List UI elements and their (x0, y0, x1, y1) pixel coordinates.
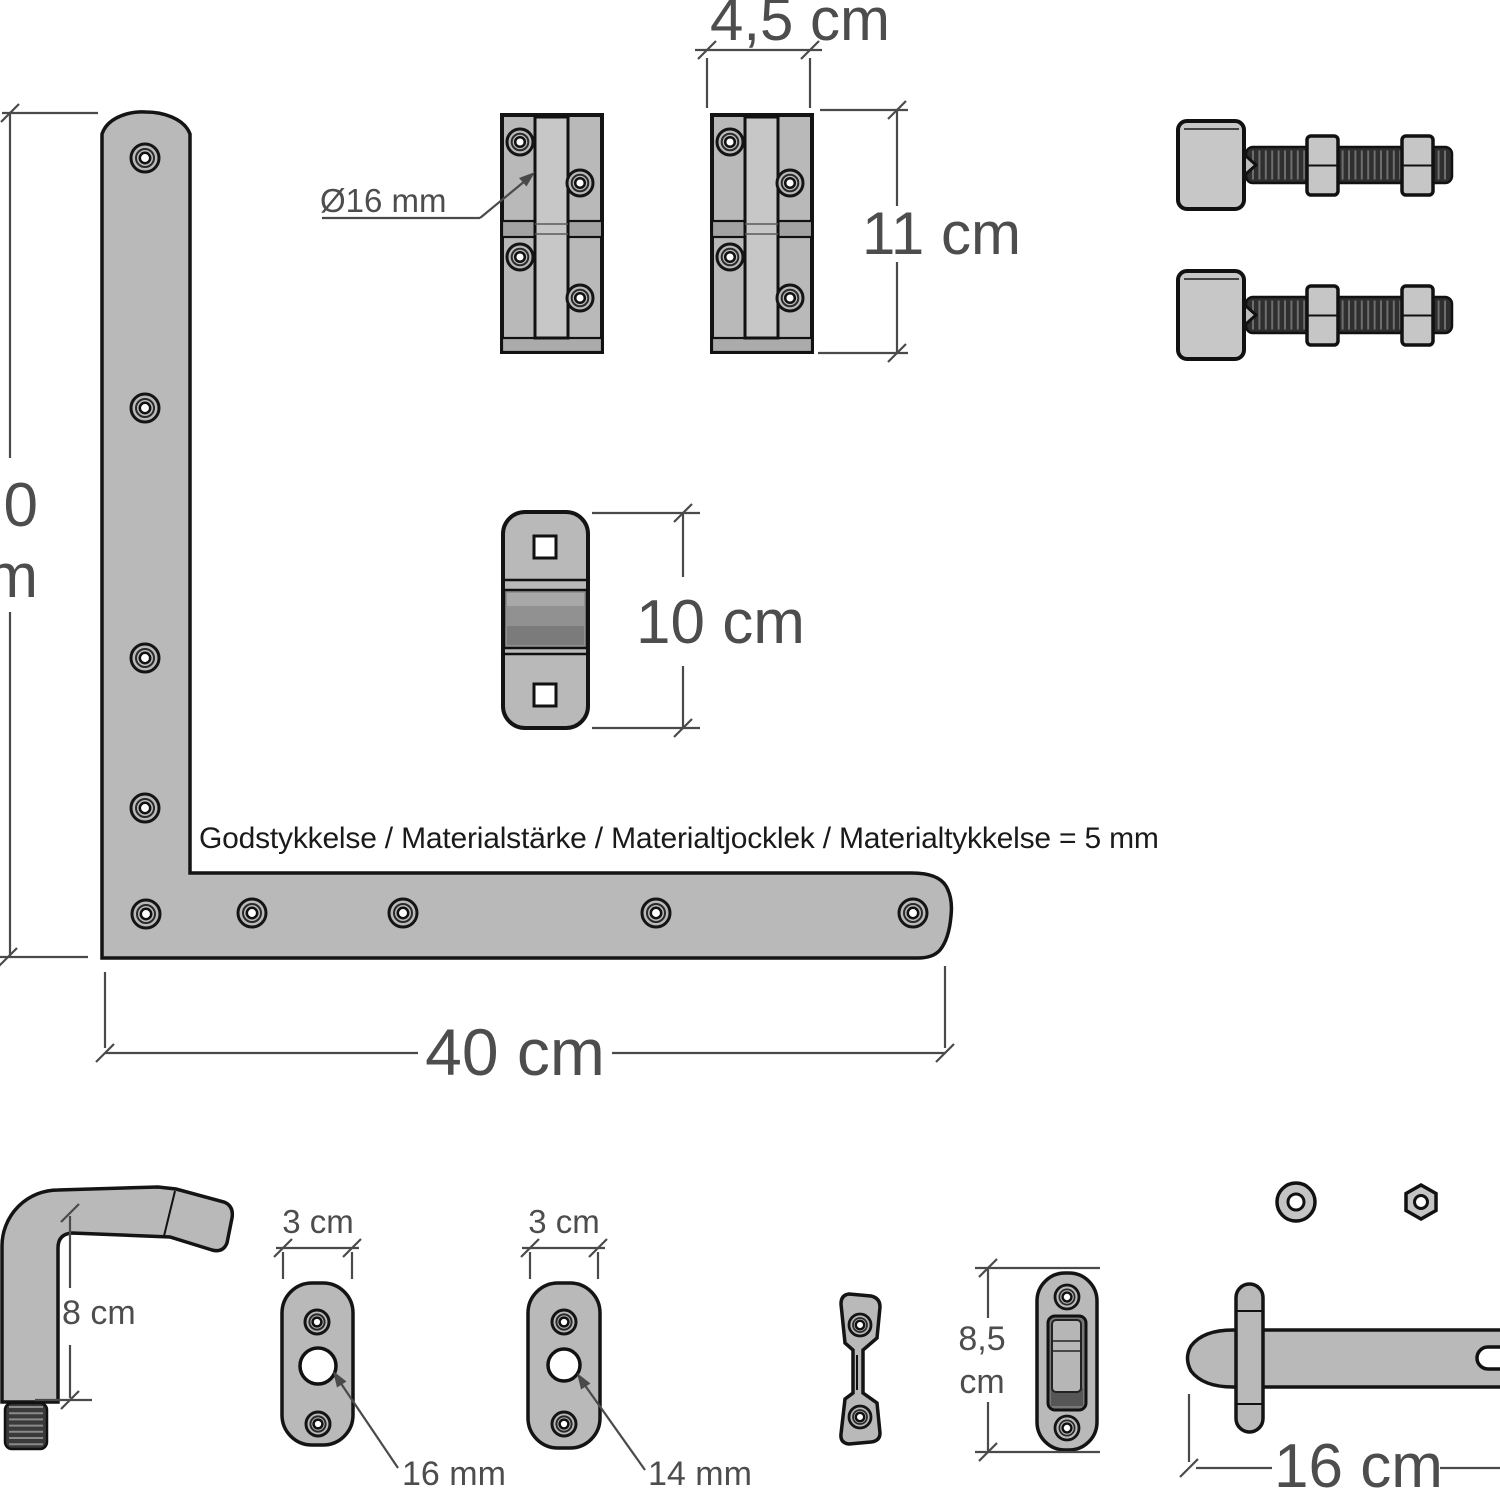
screw-hole (132, 900, 160, 928)
bolt-handle (1236, 1284, 1263, 1432)
screw-hole (849, 1314, 871, 1336)
screw-hole (389, 899, 417, 927)
plate-16mm (282, 1283, 353, 1445)
label-hinge-width: 4,5 cm (700, 0, 900, 53)
label-plate14-width: 3 cm (527, 1204, 601, 1241)
hardware-drawing-svg (0, 0, 1500, 1500)
dimension-plate14-width (521, 1239, 607, 1279)
label-latch-keeper-height-value: 8,5 (950, 1318, 1014, 1361)
screw-hole (1055, 1285, 1079, 1309)
plate-14mm (528, 1283, 600, 1448)
center-hole-14mm (548, 1349, 580, 1381)
catch-bracket (841, 1294, 880, 1444)
roller-keeper (503, 512, 588, 728)
screw-hole (131, 794, 159, 822)
adjustable-hinge-bolt-2 (1178, 271, 1452, 359)
screw-hole (849, 1406, 871, 1428)
technical-drawing: 4,5 cm 11 cm Ø16 mm 10 cm 0 m Godstykkel… (0, 0, 1500, 1500)
adjustable-hinge-bolt-1 (1178, 121, 1452, 209)
bolt-slot (1477, 1347, 1500, 1369)
screw-hole (642, 899, 670, 927)
label-pin-diameter: Ø16 mm (320, 183, 447, 220)
label-bracket-height-cut-line2: m (0, 541, 38, 612)
label-bracket-width: 40 cm (420, 1016, 610, 1090)
label-hook-height: 8 cm (62, 1294, 136, 1332)
screw-hole (777, 170, 803, 196)
latch-tongue (1052, 1320, 1081, 1392)
washer (1277, 1183, 1315, 1221)
label-drop-bolt-length: 16 cm (1274, 1432, 1443, 1500)
hinge-eye-sleeve (1178, 121, 1244, 209)
screw-hole (717, 244, 743, 270)
square-hole (534, 536, 556, 558)
screw-hole (1055, 1416, 1079, 1440)
screw-hole (567, 285, 593, 311)
screw-hole (507, 244, 533, 270)
screw-hole (567, 170, 593, 196)
hinge-block-1 (502, 115, 602, 352)
label-latch-keeper-height: 8,5 cm (950, 1318, 1014, 1404)
screw-hole (552, 1310, 576, 1334)
hinge-block-2 (712, 115, 812, 352)
screw-hole (552, 1412, 576, 1436)
hinge-pin-barrel (535, 117, 568, 338)
drop-bolt (1188, 1284, 1500, 1432)
label-bracket-height-cut-line1: 0 (0, 470, 38, 541)
screw-hole (507, 129, 533, 155)
screw-hole (777, 285, 803, 311)
hinge-pin-barrel (745, 117, 778, 338)
center-hole-16mm (300, 1348, 336, 1384)
hex-nut (1406, 1185, 1436, 1219)
latch-keeper-plate (1037, 1273, 1097, 1450)
screw-hole (305, 1310, 329, 1334)
label-plate16-hole: 16 mm (402, 1455, 506, 1493)
screw-hole (131, 394, 159, 422)
label-material-note: Godstykkelse / Materialstärke / Material… (199, 822, 1159, 856)
label-plate14-hole: 14 mm (648, 1455, 752, 1493)
hex-nut (1402, 136, 1433, 195)
dimension-plate16-width (274, 1239, 361, 1279)
label-latch-keeper-height-unit: cm (950, 1361, 1014, 1404)
screw-hole (899, 899, 927, 927)
screw-hole (306, 1412, 330, 1436)
label-hinge-height: 11 cm (862, 200, 1021, 267)
screw-hole (717, 129, 743, 155)
hex-nut (1307, 136, 1338, 195)
label-plate16-width: 3 cm (281, 1204, 355, 1241)
screw-hole (131, 144, 159, 172)
label-bracket-height-cut: 0 m (0, 470, 38, 612)
screw-hole (238, 899, 266, 927)
label-keeper-height: 10 cm (636, 588, 805, 657)
square-hole (534, 684, 556, 706)
screw-hole (131, 644, 159, 672)
